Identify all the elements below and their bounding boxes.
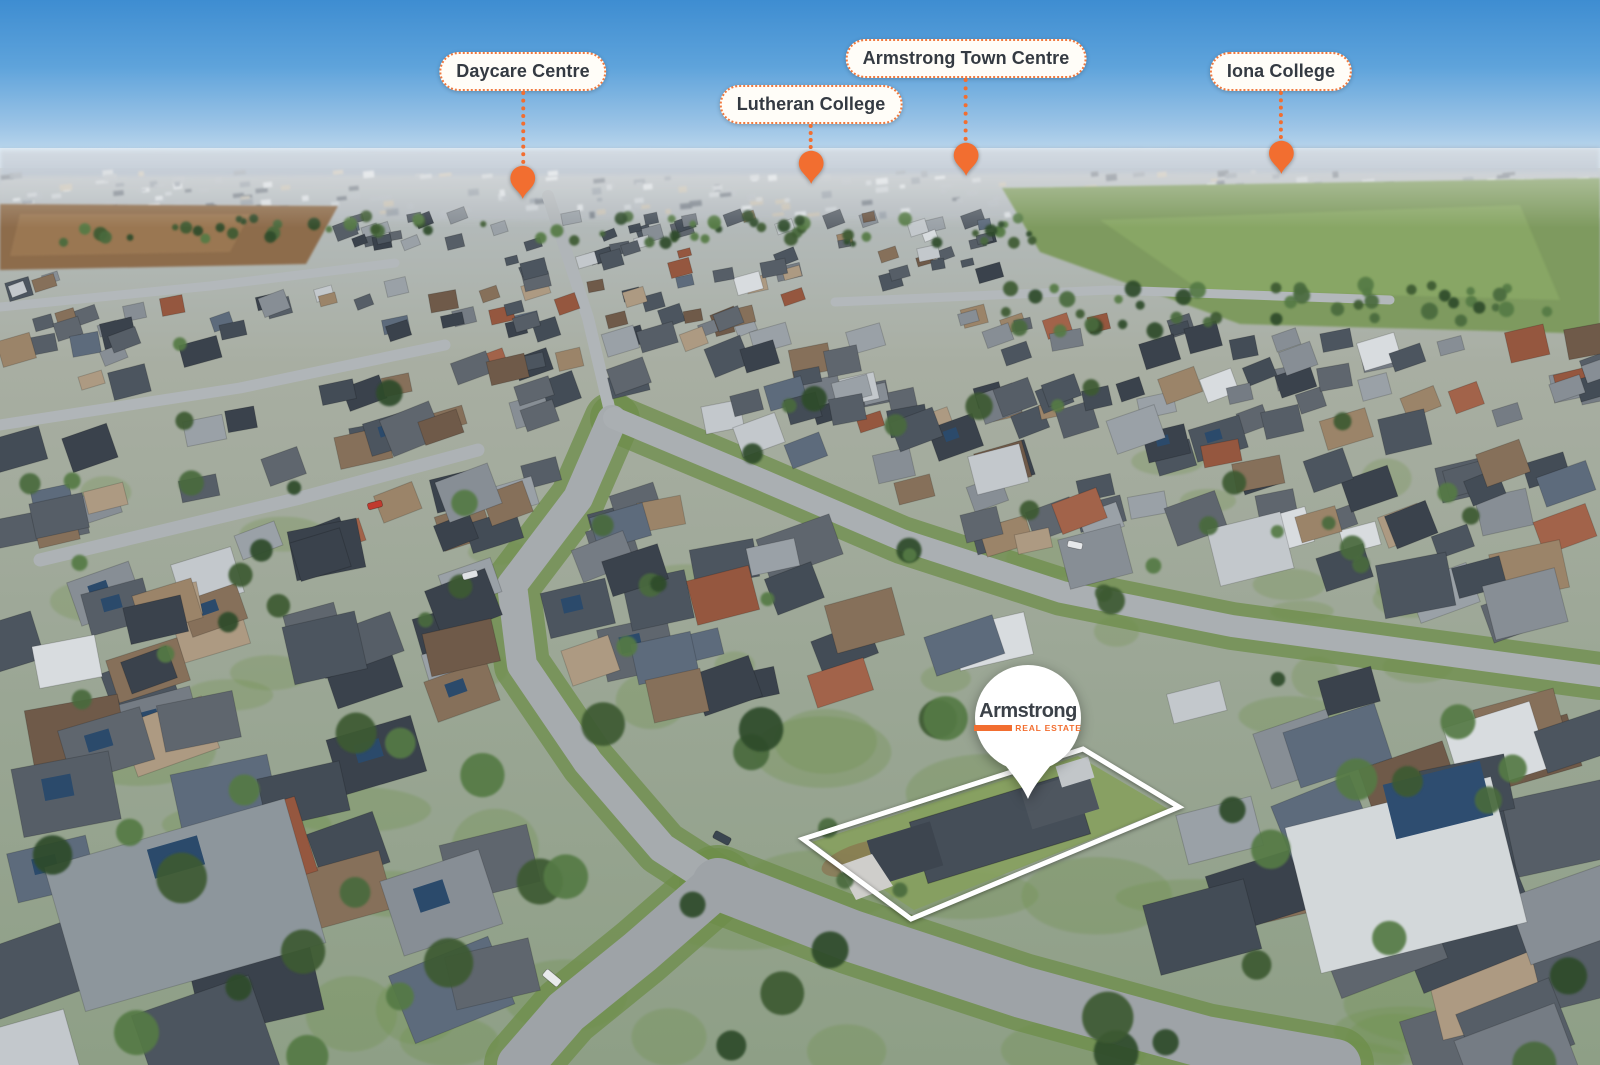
location-pin-icon <box>798 149 825 185</box>
marker-connector-line <box>964 78 968 141</box>
brand-tagline: REAL ESTATE <box>1015 724 1081 733</box>
location-pin-icon <box>509 164 536 200</box>
brand-wordmark: Armstrong <box>973 701 1083 721</box>
marker-connector-line <box>809 124 813 149</box>
marker-label: Armstrong Town Centre <box>846 39 1087 78</box>
location-pin-icon <box>953 141 980 177</box>
property-pin: Armstrong REAL ESTATE <box>973 661 1083 801</box>
marker-label: Iona College <box>1210 52 1352 91</box>
marker-connector-line <box>521 91 525 164</box>
marker-daycare-centre: Daycare Centre <box>439 52 606 200</box>
marker-label: Daycare Centre <box>439 52 606 91</box>
brand-underline <box>974 725 1012 731</box>
marker-iona-college: Iona College <box>1210 52 1352 175</box>
armstrong-logo: Armstrong REAL ESTATE <box>973 701 1083 733</box>
marker-connector-line <box>1279 91 1283 139</box>
location-pin-icon <box>1268 139 1295 175</box>
aerial-photo: Daycare Centre Lutheran College Armstron… <box>0 0 1600 1065</box>
marker-armstrong-town-centre: Armstrong Town Centre <box>846 39 1087 177</box>
